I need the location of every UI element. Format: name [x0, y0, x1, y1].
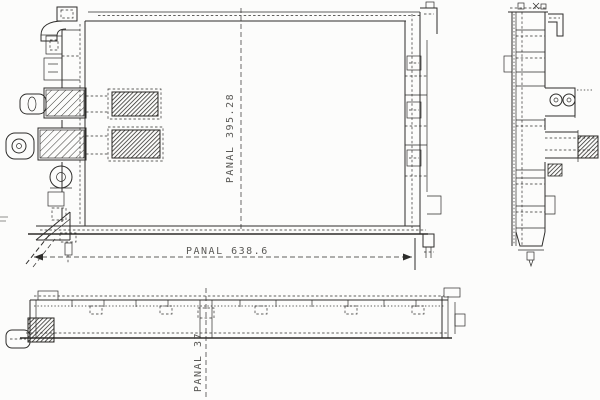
- depth-dimension-label: PANAL 37: [193, 332, 204, 392]
- depth-dimension: PANAL 37: [193, 288, 206, 398]
- width-dimension-label: PANAL 638.6: [186, 246, 269, 257]
- drain-plug: [48, 166, 72, 220]
- upper-pipe-connector: [20, 88, 161, 119]
- front-view: PANAL 395.28: [0, 2, 441, 267]
- side-view: [504, 3, 598, 266]
- side-upper-connector: [545, 88, 592, 118]
- edge-mark: [0, 217, 8, 221]
- bottom-view: PANAL 37: [6, 288, 465, 398]
- side-bottom-foot: [516, 232, 545, 266]
- bottom-left-bracket: [26, 212, 76, 267]
- top-header: [85, 12, 420, 21]
- side-lower-connector: [545, 130, 598, 176]
- bottom-header: [28, 226, 428, 234]
- width-dimension: PANAL 638.6: [34, 238, 415, 270]
- height-dimension: PANAL 395.28: [225, 8, 241, 232]
- bottom-right-cap: [442, 288, 465, 338]
- height-dimension-label: PANAL 395.28: [225, 93, 236, 183]
- left-tank: [44, 21, 85, 226]
- right-tank: [405, 2, 441, 258]
- dim-arrow-right: [403, 254, 412, 261]
- drawing-canvas: PANAL 395.28 PANAL 638.6: [0, 0, 600, 400]
- radiator-technical-drawing: PANAL 395.28 PANAL 638.6: [0, 0, 600, 400]
